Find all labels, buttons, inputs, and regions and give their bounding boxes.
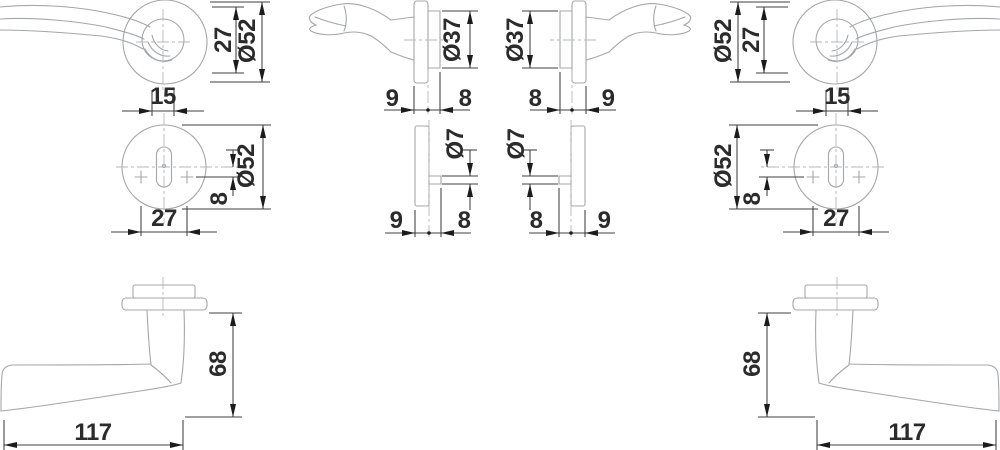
dim-length-lever-side-right: 117 — [888, 421, 925, 445]
dim-neck-handle-top-left: 15 — [150, 85, 176, 109]
dim-offset-escutcheon-front-right: 8 — [741, 193, 765, 206]
dim-diameter-escutcheon-front-left: Ø52 — [235, 144, 259, 188]
dim-front-rose-side-left: 9 — [386, 87, 399, 111]
view-escutcheon-front-right — [729, 113, 889, 236]
dim-diameter-handle-top-right: Ø52 — [712, 19, 736, 63]
view-handle-top-left — [0, 0, 270, 116]
dim-height-lever-side-right: 68 — [741, 351, 765, 377]
dim-front-escutcheon-side-left: 9 — [390, 209, 403, 233]
dim-diameter-escutcheon-side-left: Ø7 — [444, 128, 468, 159]
dim-offset-escutcheon-front-left: 8 — [208, 193, 232, 206]
dim-back-escutcheon-side-right: 8 — [530, 209, 543, 233]
dim-width-escutcheon-front-right: 27 — [823, 207, 849, 231]
dim-diameter-escutcheon-front-right: Ø52 — [712, 144, 736, 188]
technical-drawing-svg — [0, 0, 1000, 450]
dim-back-rose-side-left: 8 — [459, 87, 472, 111]
dim-height-handle-top-left: 27 — [212, 27, 236, 53]
dim-front-rose-side-right: 9 — [602, 87, 615, 111]
dim-diameter-escutcheon-side-right: Ø7 — [505, 128, 529, 159]
dim-back-escutcheon-side-left: 8 — [458, 209, 471, 233]
dim-height-lever-side-left: 68 — [207, 351, 231, 377]
dim-back-rose-side-right: 8 — [529, 87, 542, 111]
dim-width-escutcheon-front-left: 27 — [151, 207, 177, 231]
dim-neck-handle-top-right: 15 — [824, 85, 850, 109]
dim-diameter-handle-top-left: Ø52 — [236, 19, 260, 63]
dim-diameter-rose-side-left: Ø37 — [441, 18, 465, 62]
technical-drawing-canvas: 27 Ø52 15 Ø52 27 15 Ø37 9 8 Ø37 8 9 Ø52 … — [0, 0, 1000, 450]
dim-diameter-rose-side-right: Ø37 — [504, 18, 528, 62]
dim-length-lever-side-left: 117 — [74, 421, 111, 445]
view-handle-top-right — [730, 0, 1000, 116]
dim-front-escutcheon-side-right: 9 — [598, 209, 611, 233]
view-lever-side-right — [758, 277, 999, 450]
dim-height-handle-top-right: 27 — [740, 27, 764, 53]
